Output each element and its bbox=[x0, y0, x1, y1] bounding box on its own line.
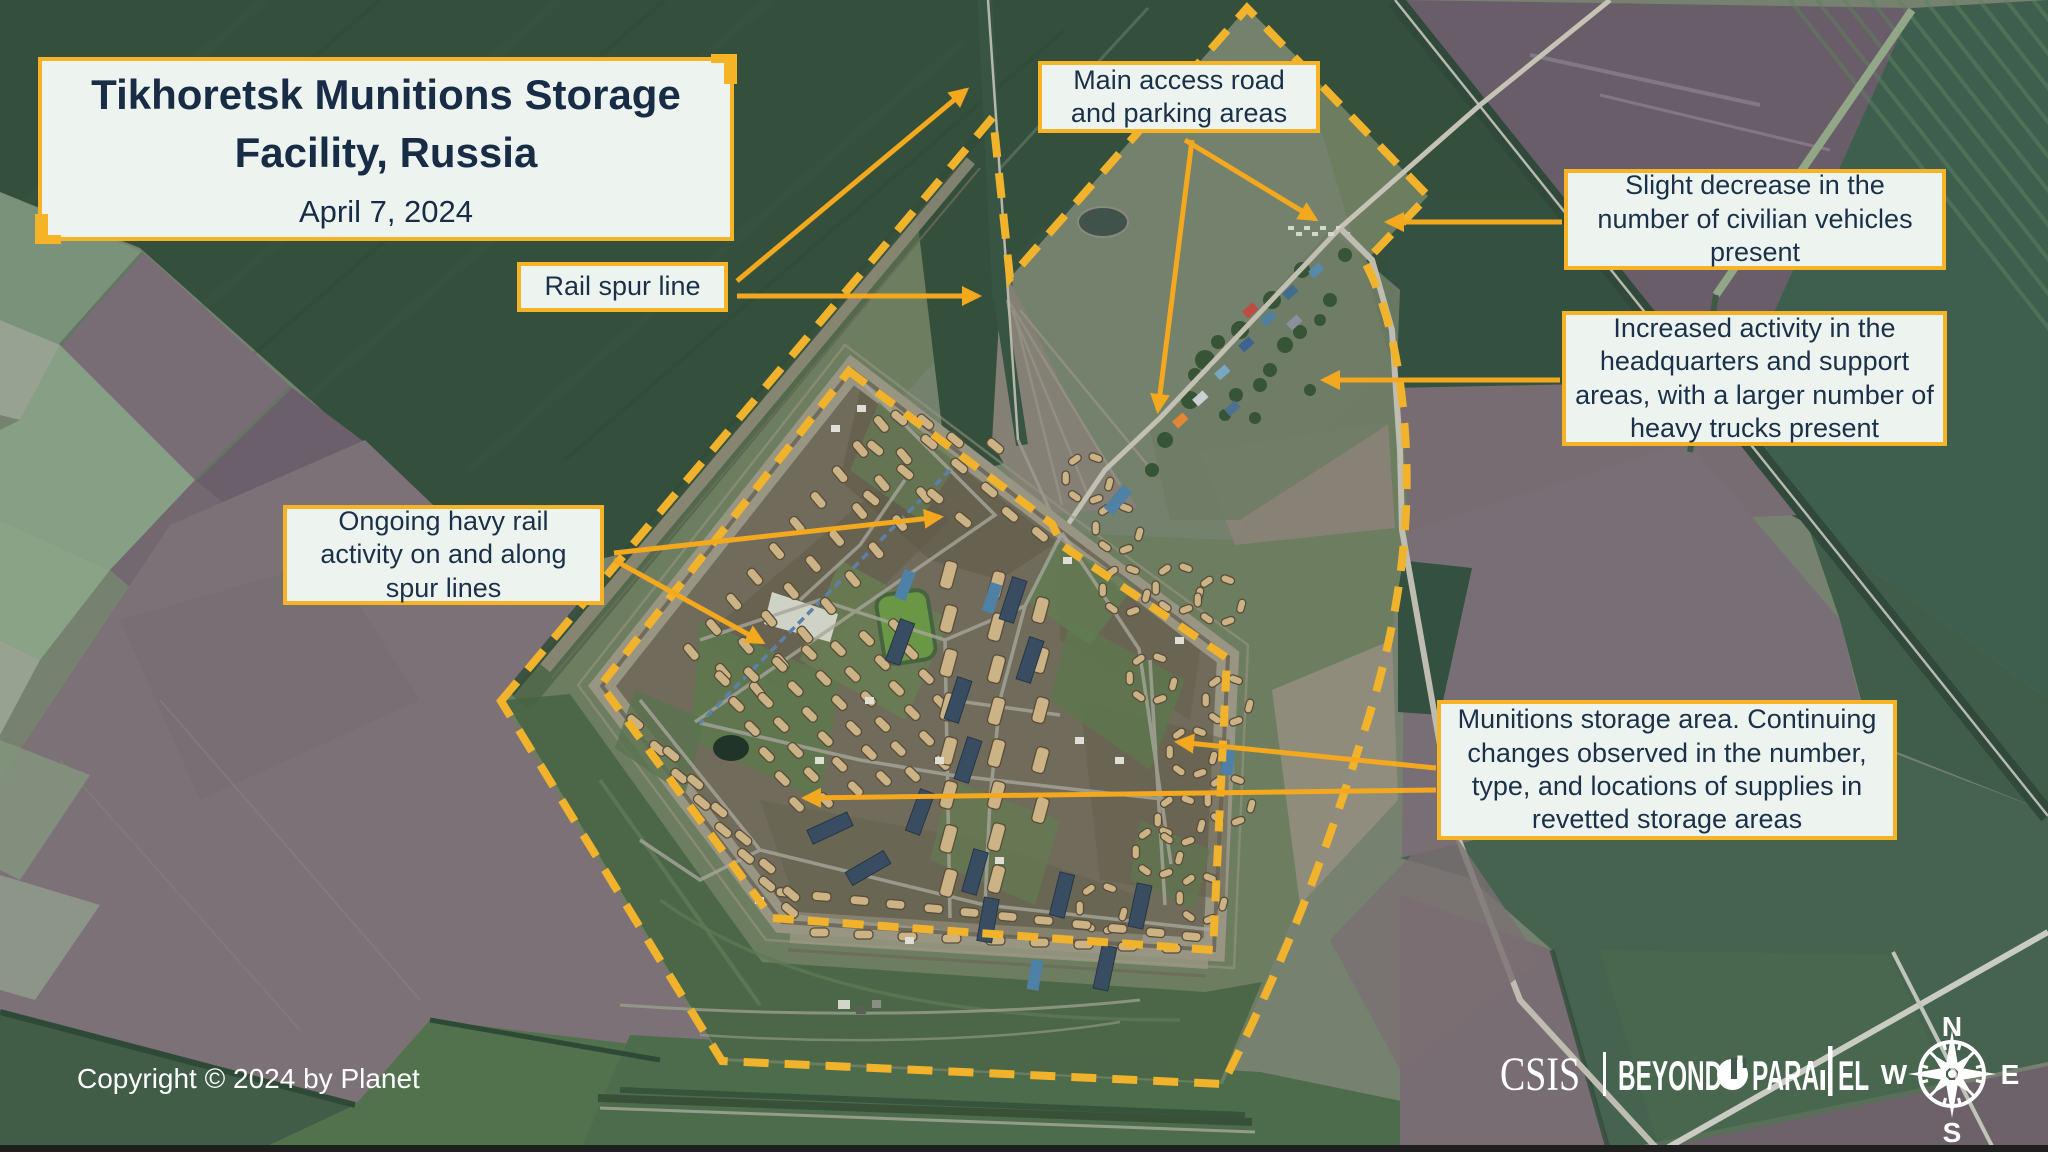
svg-text:E: E bbox=[2001, 1059, 2020, 1090]
svg-text:CSIS: CSIS bbox=[1500, 1048, 1580, 1101]
svg-text:PARA: PARA bbox=[1752, 1053, 1819, 1099]
svg-text:BEYOND: BEYOND bbox=[1618, 1053, 1722, 1099]
svg-text:W: W bbox=[1881, 1059, 1908, 1090]
svg-text:EL: EL bbox=[1838, 1053, 1869, 1099]
svg-text:S: S bbox=[1943, 1117, 1962, 1148]
